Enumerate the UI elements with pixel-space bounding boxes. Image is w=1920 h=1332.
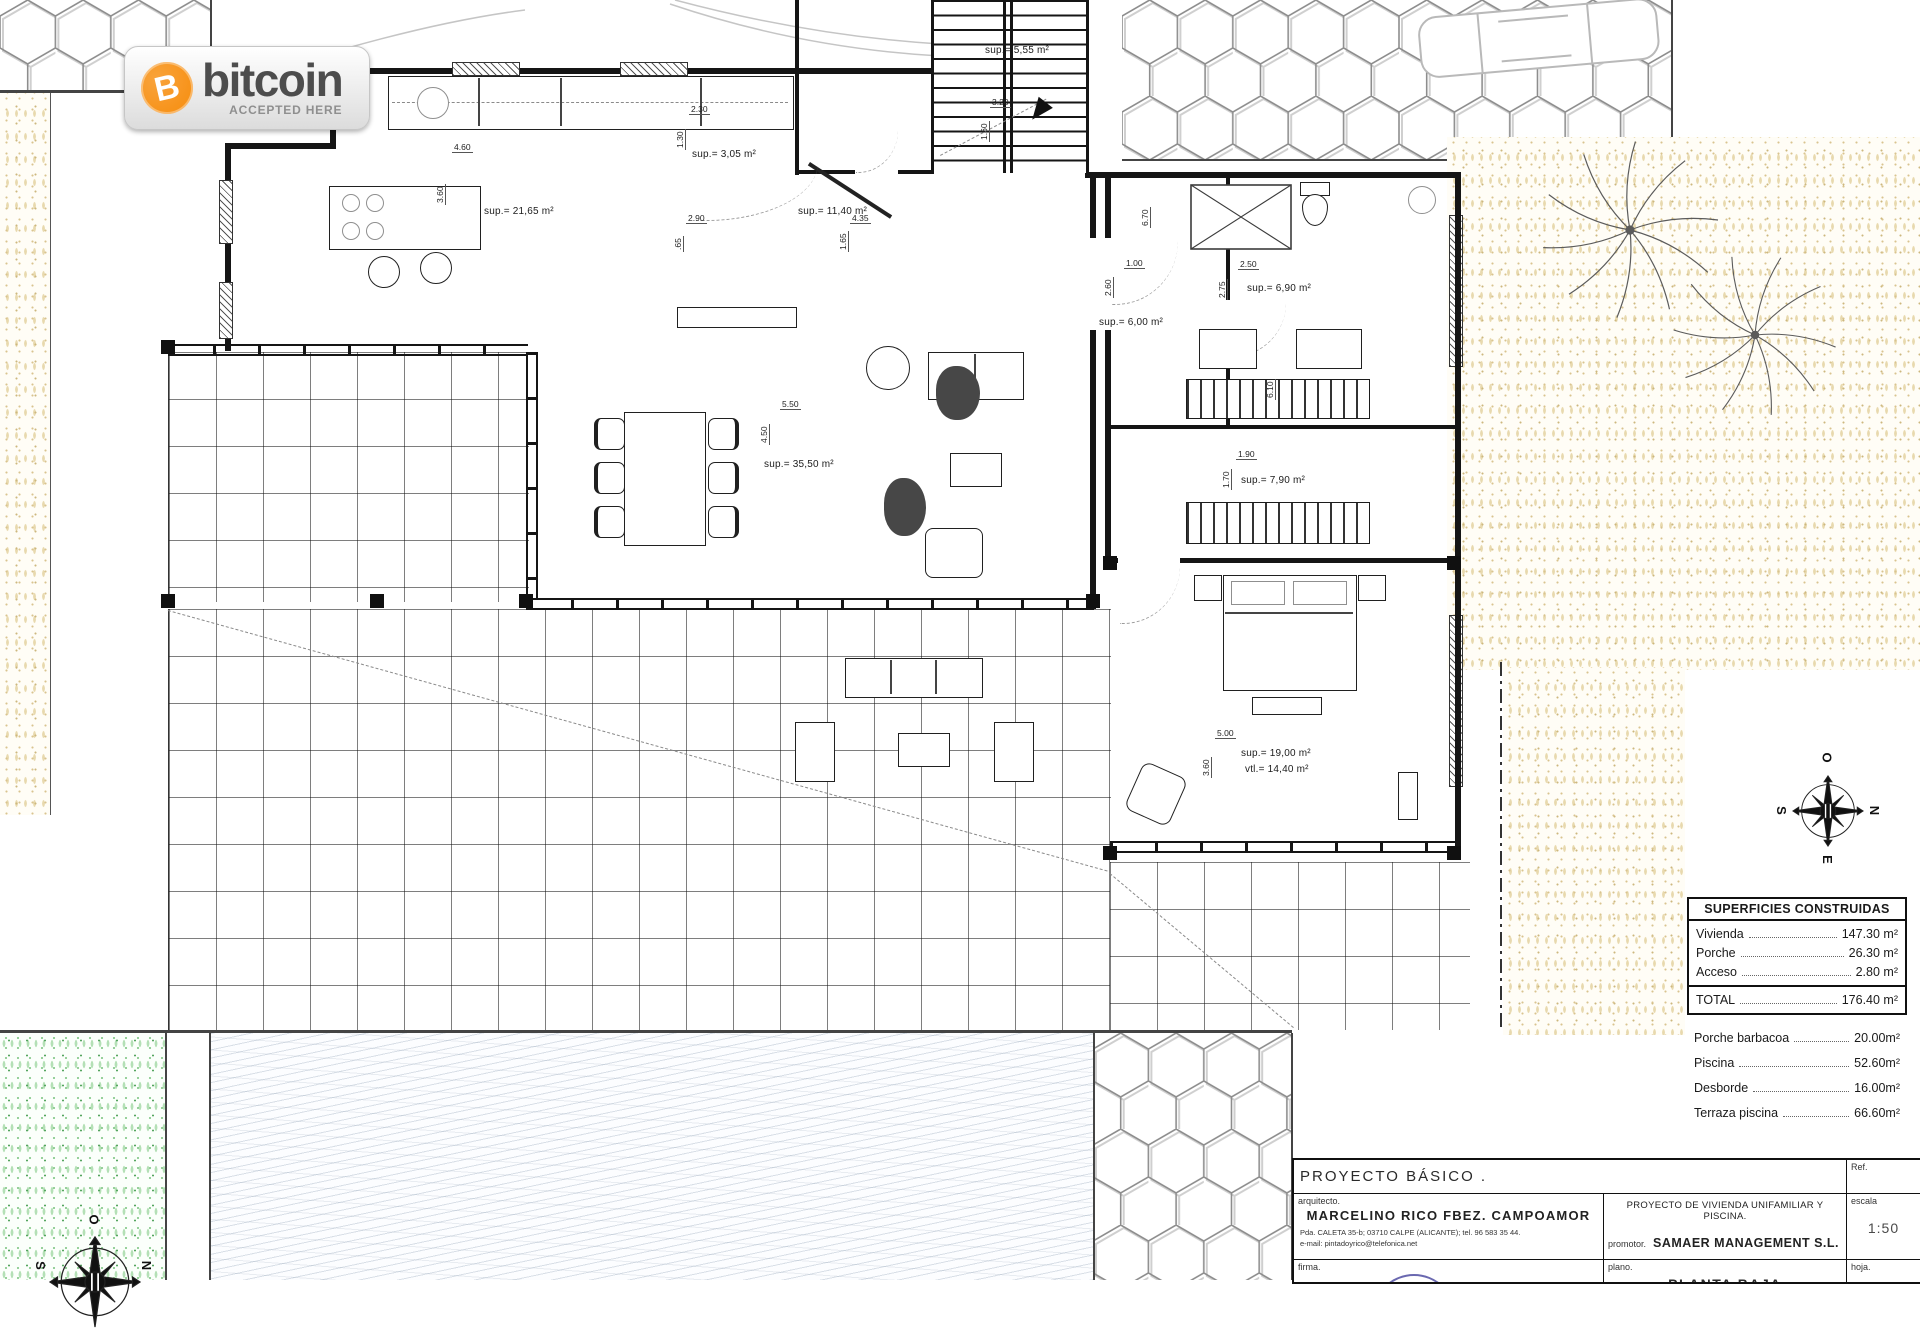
boundary-dashdot [1500, 662, 1502, 1032]
promotor-row: promotor. SAMAER MANAGEMENT S.L. [1604, 1236, 1846, 1250]
leader-dots [1783, 1116, 1849, 1117]
architect-stamp-logo [1372, 1274, 1456, 1282]
nightstand [1194, 575, 1222, 601]
dimension-label: 4.60 [452, 143, 473, 153]
wardrobe-rail [1186, 379, 1370, 419]
areas-table-rows: Vivienda147.30 m²Porche26.30 m²Acceso2.8… [1687, 921, 1907, 987]
dimension-label: 2.60 [1104, 277, 1114, 298]
tv-cabinet [1398, 772, 1418, 820]
wall-interior [1105, 425, 1461, 429]
areas-table-title: SUPERFICIES CONSTRUIDAS [1687, 897, 1907, 921]
area-row-label: Piscina [1694, 1056, 1734, 1070]
room-area-label: sup.= 6,00 m² [1099, 317, 1163, 328]
escala-value: 1:50 [1847, 1220, 1920, 1236]
dining-chair [708, 418, 739, 450]
title-block: PROYECTO BÁSICO . Ref. arquitecto. MARCE… [1292, 1158, 1920, 1284]
architect-address: Pda. CALETA 35-b; 03710 CALPE (ALICANTE)… [1294, 1223, 1603, 1250]
door-arc-bedroom [1120, 563, 1180, 624]
column-post [1103, 556, 1117, 570]
bed-bench [1252, 697, 1322, 715]
bitcoin-brand: bitcoin [202, 59, 342, 103]
paving-bottom-right [1093, 1033, 1292, 1280]
bitcoin-coin-icon: B [136, 57, 198, 119]
area-row-value: 176.40 m² [1842, 993, 1898, 1007]
architect-email: e-mail: pintadoyrico@telefonica.net [1300, 1239, 1417, 1248]
area-row: Acceso2.80 m² [1696, 962, 1898, 981]
dimension-label: 1.60 [980, 121, 990, 142]
plano-value: PLANTA BAJA [1604, 1276, 1846, 1282]
window-hatch [620, 62, 688, 76]
plot-line [1093, 1033, 1095, 1280]
title-block-plano-cell: plano. PLANTA BAJA [1604, 1260, 1847, 1282]
column-post [161, 340, 175, 354]
wall-pantry [795, 0, 799, 175]
area-row-value: 20.00m² [1854, 1031, 1900, 1045]
compass-letter-right: N [1867, 806, 1882, 815]
leader-dots [1741, 956, 1844, 957]
sand-strip-left [0, 93, 51, 815]
bitcoin-symbol: B [151, 66, 184, 110]
dimension-label: 3.60 [1202, 757, 1212, 778]
area-row-label: Terraza piscina [1694, 1106, 1778, 1120]
dimension-label: .65 [674, 236, 684, 252]
bitcoin-badge-text: bitcoin ACCEPTED HERE [202, 59, 342, 116]
arquitecto-label: arquitecto. [1294, 1194, 1603, 1206]
bar-stool [368, 256, 400, 288]
stair-stringer [1010, 0, 1013, 173]
pillow [1293, 581, 1347, 605]
room-area-label: sup.= 21,65 m² [484, 206, 554, 217]
compass2-letter-right: N [139, 1261, 154, 1270]
escala-label: escala [1847, 1194, 1920, 1206]
area-row: Porche barbacoa20.00m² [1694, 1025, 1900, 1050]
area-row-label: Acceso [1696, 965, 1737, 979]
window-hatch [219, 180, 233, 244]
column-post [519, 594, 533, 608]
area-row-label: Desborde [1694, 1081, 1748, 1095]
door-arc-pantry [856, 128, 898, 173]
counter-divider [478, 78, 480, 126]
dimension-label: 2.30 [689, 105, 710, 115]
floor-plan-sheet: B bitcoin ACCEPTED HERE O N E S [0, 0, 1920, 1280]
area-row-label: Porche barbacoa [1694, 1031, 1789, 1045]
person-figure [936, 366, 980, 420]
room-area-label: vtl.= 14,40 m² [1245, 764, 1309, 775]
dresser [1199, 329, 1257, 369]
window-hatch [452, 62, 520, 76]
area-row-value: 52.60m² [1854, 1056, 1900, 1070]
column-post [1447, 846, 1461, 860]
nightstand [1358, 575, 1386, 601]
dimension-label: 6.10 [1266, 379, 1276, 400]
cooktop-burner [366, 222, 384, 240]
compass2-letter-left: S [33, 1261, 48, 1270]
dimension-label: 4.35 [850, 214, 871, 224]
dimension-label: 1.90 [1236, 450, 1257, 460]
dimension-label: 1.65 [839, 231, 849, 252]
promotor-label: promotor. [1604, 1237, 1646, 1249]
leader-dots [1739, 1066, 1849, 1067]
bitcoin-tagline: ACCEPTED HERE [229, 105, 342, 116]
area-row-value: 26.30 m² [1849, 946, 1898, 960]
title-block-project-cell: PROYECTO DE VIVIENDA UNIFAMILIAR Y PISCI… [1604, 1194, 1847, 1260]
title-block-escala-cell: escala 1:50 [1847, 1194, 1920, 1260]
project-type: PROYECTO BÁSICO . [1294, 1160, 1846, 1185]
compass-rose-bottom-left [45, 1232, 145, 1332]
cooktop-burner [366, 194, 384, 212]
room-area-label: sup.= 3,05 m² [692, 149, 756, 160]
dimension-label: 4.50 [760, 424, 770, 445]
glass-wall-living-south [526, 598, 1094, 610]
compass-letter-top: O [1820, 752, 1835, 762]
bedroom-porch-tiles [1110, 862, 1470, 1030]
project-title: PROYECTO DE VIVIENDA UNIFAMILIAR Y PISCI… [1604, 1194, 1846, 1222]
dining-table [624, 412, 706, 546]
leader-dots [1749, 937, 1837, 938]
room-area-label: sup.= 19,00 m² [1241, 748, 1311, 759]
pool-water [211, 1033, 1093, 1280]
area-row-value: 147.30 m² [1842, 927, 1898, 941]
leader-dots [1753, 1091, 1849, 1092]
coffee-table [950, 453, 1002, 487]
column-post [370, 594, 384, 608]
area-row: Porche26.30 m² [1696, 943, 1898, 962]
area-row-label: Vivienda [1696, 927, 1744, 941]
area-row: Vivienda147.30 m² [1696, 924, 1898, 943]
shower-skylight [1190, 184, 1292, 250]
dining-chair [594, 462, 625, 494]
area-row-value: 2.80 m² [1856, 965, 1898, 979]
sofa-cushion-line [890, 660, 892, 694]
room-area-label: sup.= 7,90 m² [1241, 475, 1305, 486]
column-post [161, 594, 175, 608]
plano-label: plano. [1604, 1260, 1846, 1272]
toilet-bowl [1302, 194, 1328, 226]
glass-wall-dining-west [526, 352, 538, 600]
dimension-label: 6.70 [1141, 207, 1151, 228]
window-hatch [219, 282, 233, 339]
compass2-letter-top: O [87, 1214, 102, 1224]
area-row-label: Porche [1696, 946, 1736, 960]
column-post [1086, 594, 1100, 608]
dimension-label: 1.00 [1124, 259, 1145, 269]
outdoor-sofa [845, 658, 983, 698]
dimension-label: 1.30 [676, 129, 686, 150]
sun-lounger [994, 722, 1034, 782]
dimension-label: 2.50 [1238, 260, 1259, 270]
round-side-table [866, 346, 910, 390]
dimension-label: 2.90 [686, 214, 707, 224]
compass-rose-right [1789, 772, 1867, 850]
title-block-firma-cell: firma. [1294, 1260, 1604, 1282]
dresser [1296, 329, 1362, 369]
area-row-value: 66.60m² [1854, 1106, 1900, 1120]
column-post [1103, 846, 1117, 860]
dimension-label: 5.50 [780, 400, 801, 410]
wall-wing-east [1455, 172, 1461, 852]
dimension-label: 2.75 [1218, 279, 1228, 300]
sofa-cushion-line [935, 660, 937, 694]
area-row: Desborde16.00m² [1694, 1075, 1900, 1100]
wall [898, 170, 934, 174]
wash-basin [1408, 186, 1436, 214]
architect-address-line: Pda. CALETA 35-b; 03710 CALPE (ALICANTE)… [1300, 1228, 1520, 1237]
counter-divider [700, 78, 702, 126]
bed-sheet-line [1225, 612, 1353, 614]
person-figure [884, 478, 926, 536]
leader-dots [1740, 1003, 1837, 1004]
walkway-line [165, 1033, 167, 1280]
dimension-label: 5.00 [1215, 729, 1236, 739]
car-outline [1400, 0, 1680, 90]
dining-chair [708, 462, 739, 494]
column-post [1447, 556, 1461, 570]
hoja-label: hoja. [1847, 1260, 1920, 1272]
wall [225, 143, 333, 149]
areas-table: SUPERFICIES CONSTRUIDAS Vivienda147.30 m… [1687, 897, 1907, 1125]
title-block-architect-cell: arquitecto. MARCELINO RICO FBEZ. CAMPOAM… [1294, 1194, 1604, 1260]
areas-table-total: TOTAL176.40 m² [1687, 987, 1907, 1015]
dimension-label: 3.20 [990, 98, 1011, 108]
sun-lounger [795, 722, 835, 782]
promotor-name: SAMAER MANAGEMENT S.L. [1646, 1236, 1846, 1250]
armchair [925, 528, 983, 578]
dimension-label: 1.70 [1222, 469, 1232, 490]
sideboard [677, 307, 797, 328]
wall-wing-west [1105, 172, 1111, 565]
cooktop-burner [342, 222, 360, 240]
sand-strip-right [1503, 667, 1685, 1035]
pillow [1231, 581, 1285, 605]
cooktop-burner [342, 194, 360, 212]
bar-stool [420, 252, 452, 284]
architect-name: MARCELINO RICO FBEZ. CAMPOAMOR [1294, 1208, 1603, 1223]
kitchen-sink [417, 87, 449, 119]
porch-terrace-tiles [168, 352, 529, 602]
dining-chair [594, 418, 625, 450]
room-area-label: sup.= 35,50 m² [764, 459, 834, 470]
title-block-ref-cell: Ref. [1847, 1160, 1920, 1194]
wall-wing-north [1105, 172, 1461, 178]
counter-divider [560, 78, 562, 126]
firma-label: firma. [1294, 1260, 1603, 1272]
bitcoin-badge: B bitcoin ACCEPTED HERE [124, 46, 370, 130]
ref-label: Ref. [1847, 1160, 1920, 1172]
glass-wall-bedroom-south [1110, 841, 1455, 853]
dimension-label: 3.60 [436, 184, 446, 205]
leader-dots [1742, 975, 1851, 976]
compass-letter-left: S [1774, 806, 1789, 815]
area-row-label: TOTAL [1696, 993, 1735, 1007]
stair-stringer [1003, 0, 1006, 173]
compass-letter-bottom: E [1820, 855, 1835, 864]
area-row-value: 16.00m² [1854, 1081, 1900, 1095]
leader-dots [1794, 1041, 1849, 1042]
area-row: TOTAL176.40 m² [1696, 990, 1898, 1009]
palm-trees [1510, 130, 1890, 420]
wardrobe-rail [1186, 502, 1370, 544]
outdoor-table [898, 733, 950, 767]
title-block-hoja-cell: hoja. [1847, 1260, 1920, 1282]
title-block-project-type-cell: PROYECTO BÁSICO . [1294, 1160, 1847, 1194]
room-area-label: sup.= 5,55 m² [985, 45, 1049, 56]
room-area-label: sup.= 6,90 m² [1247, 283, 1311, 294]
counter-centerline [392, 102, 788, 103]
door-arc-bath [1112, 238, 1178, 305]
dining-chair [708, 506, 739, 538]
areas-table-extra-rows: Porche barbacoa20.00m²Piscina52.60m²Desb… [1687, 1015, 1907, 1125]
glass-wall-kitchen-south [168, 344, 528, 356]
bedroom-armchair [1123, 760, 1188, 827]
area-row: Piscina52.60m² [1694, 1050, 1900, 1075]
area-row: Terraza piscina66.60m² [1694, 1100, 1900, 1125]
dining-chair [594, 506, 625, 538]
